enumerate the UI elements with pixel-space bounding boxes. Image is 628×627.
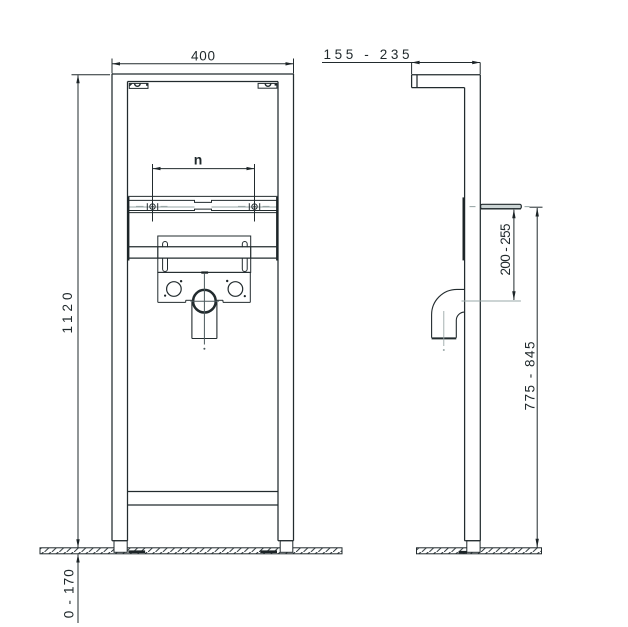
svg-text:775 - 845: 775 - 845: [523, 342, 538, 411]
svg-text:155 - 235: 155 - 235: [324, 47, 410, 62]
svg-text:1120: 1120: [60, 293, 75, 334]
svg-text:0 - 170: 0 - 170: [62, 569, 77, 618]
svg-text:n: n: [194, 152, 203, 168]
svg-text:200 - 255: 200 - 255: [498, 224, 513, 276]
svg-text:400: 400: [191, 49, 215, 64]
